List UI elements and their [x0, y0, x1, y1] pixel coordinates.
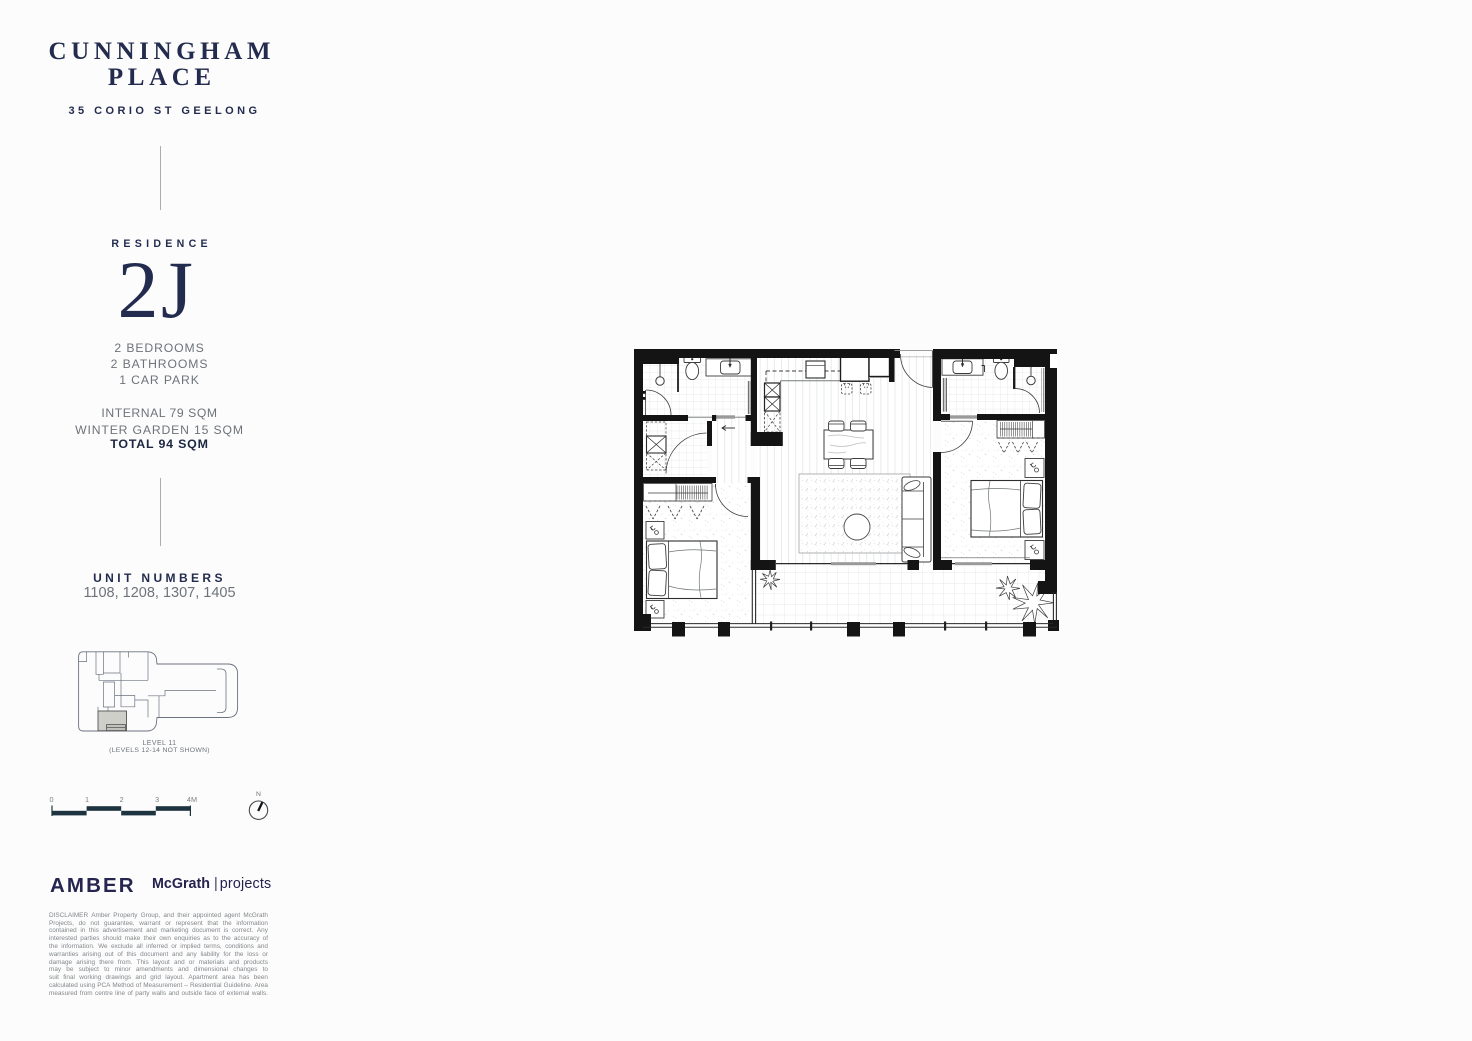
svg-text:1: 1	[85, 795, 89, 804]
svg-text:2: 2	[120, 795, 124, 804]
svg-text:3: 3	[155, 795, 159, 804]
svg-text:0: 0	[49, 795, 53, 804]
svg-text:N: N	[256, 791, 261, 798]
svg-text:4M: 4M	[187, 795, 197, 804]
